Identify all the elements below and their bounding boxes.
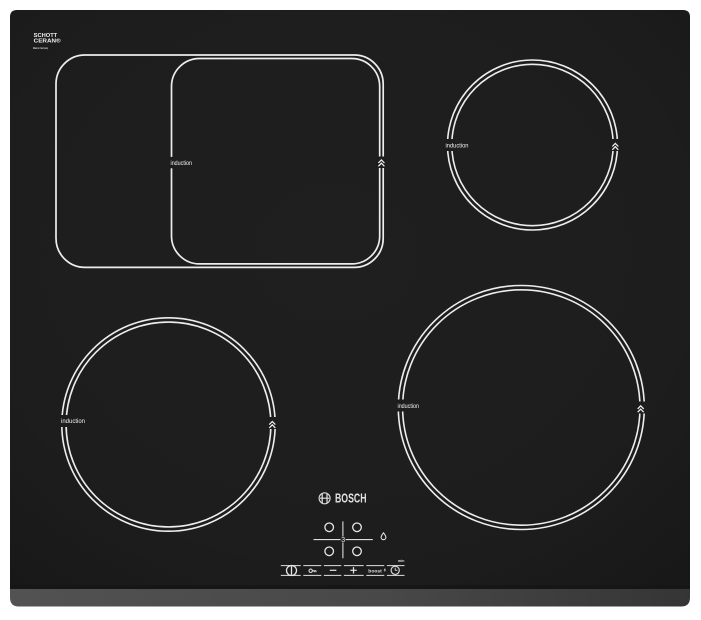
- svg-text:induction: induction: [446, 142, 469, 149]
- svg-text:CERAN®: CERAN®: [34, 37, 62, 44]
- svg-text:induction: induction: [171, 160, 193, 167]
- svg-text:3: 3: [341, 535, 345, 544]
- svg-text:Made in Germany: Made in Germany: [33, 46, 48, 50]
- svg-text:induction: induction: [398, 403, 420, 410]
- svg-text:boost: boost: [368, 568, 382, 573]
- svg-text:BOSCH: BOSCH: [335, 491, 367, 506]
- svg-text:min: min: [398, 559, 405, 563]
- svg-text:induction: induction: [61, 418, 85, 425]
